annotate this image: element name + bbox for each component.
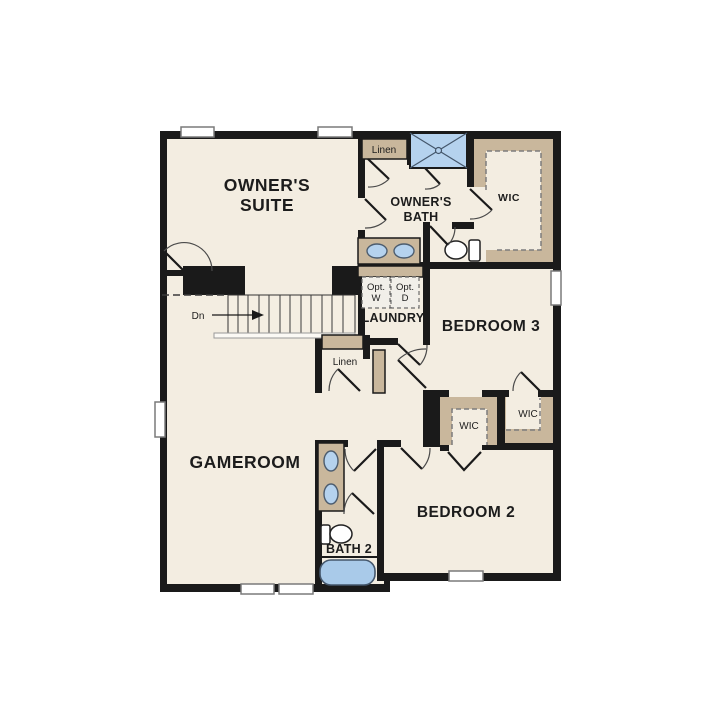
gameroom-label: GAMEROOM xyxy=(190,452,301,472)
bedroom3-label: BEDROOM 3 xyxy=(442,318,540,335)
hall-pier xyxy=(373,350,385,393)
laundry-shelf xyxy=(358,266,423,277)
floorplan-canvas: OWNER'S SUITE OWNER'S BATH Linen WIC Opt… xyxy=(0,0,720,720)
window-bottom-2 xyxy=(279,584,313,594)
bath2-sink-bottom-icon xyxy=(324,484,338,504)
opt-washer-label-line2: W xyxy=(372,293,381,304)
owners-suite-label-line2: SUITE xyxy=(240,195,294,215)
floorplan-page: OWNER'S SUITE OWNER'S BATH Linen WIC Opt… xyxy=(0,0,720,720)
owners-bath-label-line1: OWNER'S xyxy=(390,195,451,209)
window-left xyxy=(155,402,165,437)
window-top-right xyxy=(318,127,352,137)
owners-suite-label-line1: OWNER'S xyxy=(224,175,310,195)
window-bottom-1 xyxy=(241,584,274,594)
window-top-left xyxy=(181,127,214,137)
bedroom2-wic-label: WIC xyxy=(518,409,537,420)
opt-washer-label-line1: Opt. xyxy=(367,282,385,293)
linen-mid-shelf xyxy=(322,335,363,349)
owners-bath-label-line2: BATH xyxy=(404,210,439,224)
opt-dryer-label-line1: Opt. xyxy=(396,282,414,293)
owners-wic-label: WIC xyxy=(498,192,520,204)
bedroom3-wic-label: WIC xyxy=(459,421,478,432)
owners-bath-sink-left-icon xyxy=(367,244,387,258)
shower-icon xyxy=(410,133,467,168)
bedroom2-label: BEDROOM 2 xyxy=(417,504,515,521)
laundry-label: LAUNDRY xyxy=(362,311,425,325)
window-bottom-3 xyxy=(449,571,483,581)
linen-mid-label: Linen xyxy=(333,357,357,368)
opt-dryer-label-line2: D xyxy=(402,293,409,304)
owners-bath-sink-right-icon xyxy=(394,244,414,258)
stairs-dn-label: Dn xyxy=(192,311,205,322)
bath2-label: BATH 2 xyxy=(326,542,372,556)
bedroom2-wic-shelving xyxy=(505,397,553,443)
bathtub-icon xyxy=(320,560,375,585)
window-right xyxy=(551,271,561,305)
bath2-sink-top-icon xyxy=(324,451,338,471)
linen-top-label: Linen xyxy=(372,145,396,156)
